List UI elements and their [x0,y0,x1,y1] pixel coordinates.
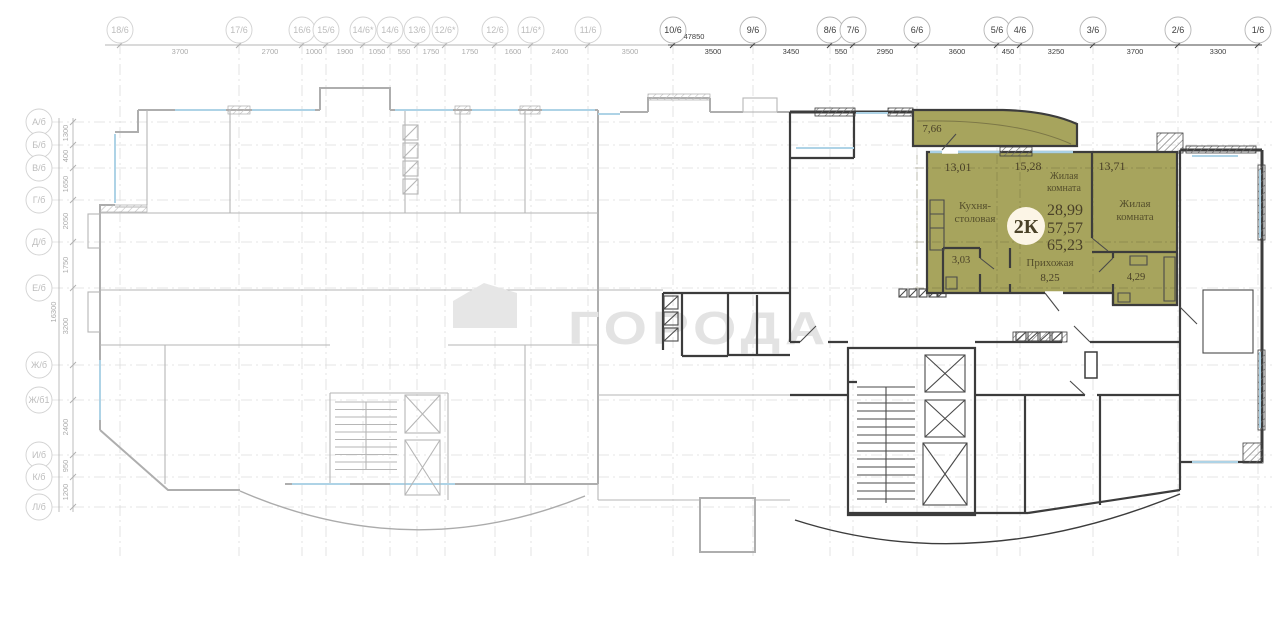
dimension-label-top: 3700 [172,47,189,56]
axis-label-left: Б/б [32,140,46,150]
elevator-shaft-x [925,355,965,392]
dimension-label-top: 3500 [622,47,639,56]
dimension-label-top: 1900 [337,47,354,56]
room-neighbor-right [1203,290,1253,353]
wall-pier [100,205,147,212]
area-living: 28,99 [1047,202,1083,219]
door-leaves-dark [800,307,1197,395]
area-total: 57,57 [1047,220,1083,237]
axis-label-top: 10/6 [664,25,682,35]
dimension-label-top: 2400 [552,47,569,56]
windows-gray-wing [100,110,620,484]
area-full: 65,23 [1047,237,1083,254]
dimension-label-left: 950 [61,460,70,473]
axis-label-top: 6/6 [911,25,924,35]
dimension-label-top: 550 [835,47,848,56]
top-dimension-labels: 3700270010001900105055017501750160024003… [117,42,1261,56]
bay-window-left [88,292,100,332]
wall-pier [1000,147,1032,156]
dimension-label-top: 550 [398,47,411,56]
total-height-dimension: 16300 [49,302,58,323]
dimension-label-left: 1650 [61,176,70,193]
wall-pier [1157,133,1183,153]
axis-label-top: 1/6 [1252,25,1265,35]
axis-label-top: 7/6 [847,25,860,35]
vent-shaft-diagonal [899,289,907,297]
axis-label-top: 14/6* [352,25,374,35]
axis-label-top: 8/6 [824,25,837,35]
vent-shaft-diagonal [909,289,917,297]
stair-block-bottom [700,498,755,552]
room-area-living-mid: 15,28 [1015,159,1042,173]
wall-pier [1243,443,1263,463]
axis-label-top: 12/6 [486,25,504,35]
room-area-kitchen: 13,01 [945,160,972,174]
wall-pier [888,108,913,116]
room-area-balcony: 7,66 [922,123,942,135]
dimension-label-top: 3600 [949,47,966,56]
dimension-label-top: 450 [1002,47,1015,56]
room-area-hall: 8,25 [1040,272,1060,284]
axis-label-left: Г/б [33,195,46,205]
axis-label-top: 5/6 [991,25,1004,35]
left-dimension-labels: 1300400165020501750320024009501200 [61,119,76,510]
room-label-kitchen-2: столовая [955,213,996,225]
wall-pier [455,106,470,114]
dimension-label-left: 1300 [61,125,70,142]
dimension-label-top: 1000 [306,47,323,56]
dimension-label-top: 3450 [783,47,800,56]
axis-label-left: И/б [32,450,46,460]
axis-label-top: 17/6 [230,25,248,35]
stairs [335,402,397,470]
dimension-label-top: 3500 [705,47,722,56]
elevator-shaft-x [405,440,440,495]
axis-label-top: 15/6 [317,25,335,35]
elevator-shaft-x [925,400,965,437]
wall-pier [815,108,855,116]
axis-label-top: 11/6* [521,25,542,35]
room-label-living-right-2: комната [1116,211,1153,223]
axis-label-top: 9/6 [747,25,760,35]
dimension-label-top: 1050 [369,47,386,56]
axis-label-top: 2/6 [1172,25,1185,35]
axis-label-top: 3/6 [1087,25,1100,35]
axis-label-left: В/б [32,163,46,173]
bay-window-left [88,214,100,248]
axis-label-top: 4/6 [1014,25,1027,35]
axis-label-top: 13/6 [408,25,426,35]
wall-pier [648,94,710,100]
axis-label-top: 12/6* [434,25,456,35]
wall-bump [743,98,777,112]
elevator-shaft-x [923,443,967,505]
badge-label: 2К [1014,216,1039,238]
dimension-label-top: 1750 [462,47,479,56]
dimension-label-left: 400 [61,150,70,163]
room-area-living-right: 13,71 [1099,159,1126,173]
room-label-hall: Прихожая [1026,257,1073,269]
wall-pier [228,106,250,114]
axis-label-left: Е/б [32,283,46,293]
room-label-living-mid-1: Жилая [1050,171,1079,182]
room-label-living-mid-2: комната [1047,183,1082,194]
dimension-label-top: 2700 [262,47,279,56]
room-label-kitchen-1: Кухня- [959,200,991,212]
axis-label-left: Ж/б [31,360,47,370]
dimension-label-top: 3300 [1210,47,1227,56]
axis-label-left: Л/б [32,502,46,512]
dimension-label-left: 2400 [61,419,70,436]
axis-label-top: 18/6 [111,25,129,35]
dimension-label-left: 1200 [61,484,70,501]
dimension-label-left: 2050 [61,213,70,230]
axis-label-left: Ж/б1 [29,395,50,405]
dimension-label-top: 2950 [877,47,894,56]
elevator-shaft-x [405,395,440,433]
balcony-arc-left [240,491,585,530]
axis-label-top: 11/6 [580,25,597,35]
floor-plan: 47850 16300 3700270010001900105055017501… [0,0,1280,638]
wall-pier [1186,146,1256,153]
corridor-pillar [1085,352,1097,378]
vent-shaft-diagonal [919,289,927,297]
axis-label-top: 16/6 [293,25,311,35]
axis-label-left: К/б [33,472,46,482]
dimension-label-top: 1600 [505,47,522,56]
dimension-label-top: 3700 [1127,47,1144,56]
dimension-label-left: 3200 [61,318,70,335]
apartment-2k[interactable]: 2К 28,99 57,57 65,23 7,66 13,01 15,28 13… [913,110,1177,311]
room-area-wc-left: 3,03 [952,255,970,266]
total-width-dimension: 47850 [684,32,705,41]
axis-label-left: Д/б [32,237,46,247]
axis-label-top: 14/6 [381,25,399,35]
room-label-living-right-1: Жилая [1119,198,1150,210]
dimension-label-top: 1750 [423,47,440,56]
dimension-label-left: 1750 [61,257,70,274]
room-area-wc-right: 4,29 [1127,272,1145,283]
wall-pier [520,106,540,114]
stairs [857,387,915,503]
dimension-label-top: 3250 [1048,47,1065,56]
axis-label-left: А/б [32,117,46,127]
